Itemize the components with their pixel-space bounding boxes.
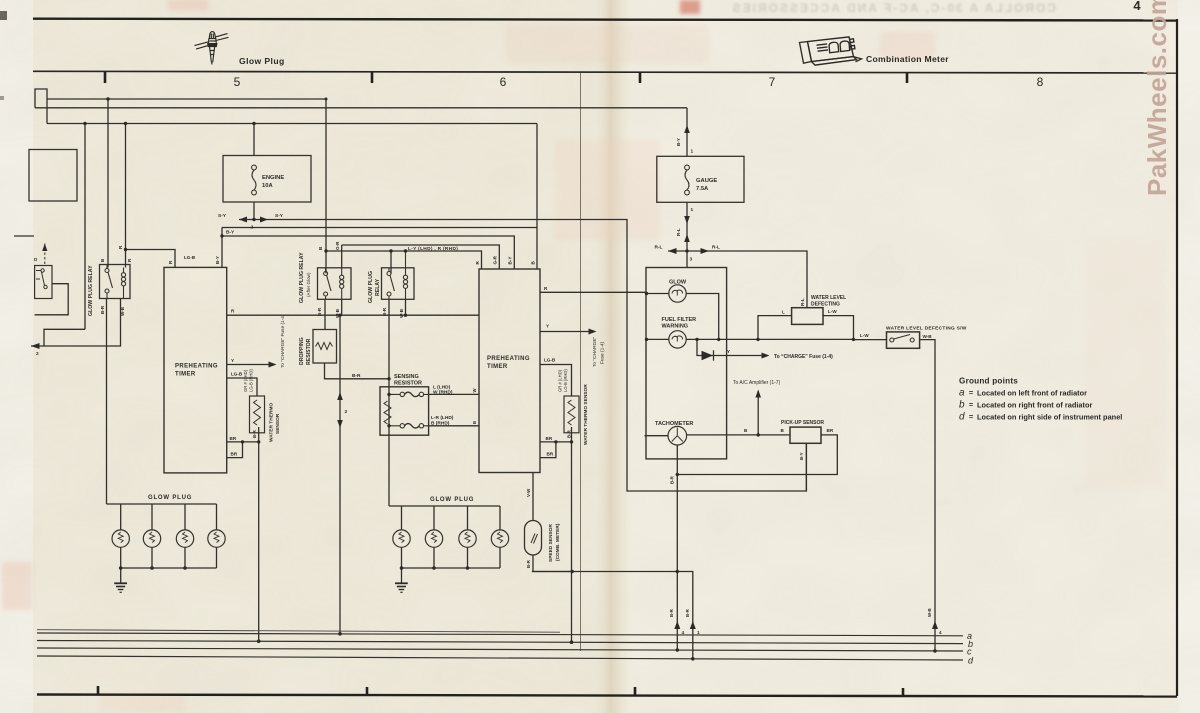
svg-text:BR: BR: [547, 452, 554, 457]
svg-text:GLOW PLUG: GLOW PLUG: [430, 497, 474, 503]
svg-text:RESISTOR: RESISTOR: [394, 381, 422, 387]
svg-text:PakWheels.com: PakWheels.com: [1142, 0, 1172, 196]
svg-text:Y: Y: [231, 358, 234, 363]
svg-text:GAUGE: GAUGE: [696, 178, 717, 184]
svg-text:=: =: [969, 402, 973, 409]
svg-text:(COMB. METER): (COMB. METER): [555, 523, 561, 561]
svg-text:Located on right side of instr: Located on right side of instrument pane…: [977, 413, 1122, 422]
svg-text:B-R: B-R: [685, 608, 690, 617]
svg-text:Y: Y: [727, 349, 730, 354]
svg-text:SPEED SENSOR: SPEED SENSOR: [548, 524, 554, 562]
svg-text:W: W: [472, 389, 477, 393]
svg-text:1: 1: [691, 149, 694, 155]
svg-text:RELAY: RELAY: [375, 278, 381, 296]
svg-text:R-L: R-L: [655, 245, 663, 251]
svg-text:L: L: [782, 310, 785, 315]
svg-text:GLOW PLUG: GLOW PLUG: [368, 271, 374, 303]
svg-text:R-L: R-L: [676, 228, 681, 236]
svg-text:GR # (LHD): GR # (LHD): [558, 369, 563, 392]
svg-text:To “CHARGE”: To “CHARGE”: [592, 336, 598, 367]
svg-text:S-Y: S-Y: [275, 213, 284, 219]
svg-text:Fuse (1-4): Fuse (1-4): [600, 341, 606, 364]
svg-text:G-R: G-R: [335, 241, 340, 250]
svg-text:ENGINE: ENGINE: [262, 175, 284, 181]
svg-text:B: B: [472, 421, 477, 424]
svg-text:5: 5: [234, 75, 241, 89]
svg-text:Y: Y: [546, 324, 549, 329]
svg-text:TIMER: TIMER: [487, 364, 508, 370]
svg-text:TACHOMETER: TACHOMETER: [655, 421, 693, 427]
svg-text:GLOW PLUG RELAY: GLOW PLUG RELAY: [88, 265, 94, 316]
svg-text:Combination Meter: Combination Meter: [866, 54, 949, 64]
svg-text:Located on right front of radi: Located on right front of radiator: [977, 401, 1092, 410]
svg-text:SENSOR: SENSOR: [275, 413, 281, 434]
svg-text:=: =: [969, 414, 973, 421]
svg-text:GLOW: GLOW: [669, 280, 687, 286]
svg-text:8: 8: [1037, 75, 1044, 89]
svg-text:B-R: B-R: [526, 559, 531, 568]
svg-text:4: 4: [939, 630, 942, 635]
svg-text:WATER LEVEL: WATER LEVEL: [811, 295, 846, 301]
svg-text:B-Y: B-Y: [676, 138, 681, 146]
svg-text:LG-B: LG-B: [231, 372, 243, 377]
svg-text:4: 4: [1133, 0, 1141, 13]
svg-text:B-R: B-R: [567, 429, 572, 438]
svg-text:FUEL FILTER: FUEL FILTER: [662, 317, 697, 323]
svg-text:TIMER: TIMER: [175, 372, 196, 378]
svg-text:WATER LEVEL DEFECTING S/W: WATER LEVEL DEFECTING S/W: [886, 326, 967, 332]
svg-text:W (RHD): W (RHD): [433, 390, 453, 396]
svg-text:LG-B: LG-B: [544, 358, 556, 363]
svg-text:d: d: [959, 412, 965, 423]
svg-text:1: 1: [691, 207, 694, 213]
svg-text:GLOW PLUG RELAY: GLOW PLUG RELAY: [299, 252, 305, 303]
svg-text:To A/C Amplifier (1-7): To A/C Amplifier (1-7): [733, 380, 781, 386]
svg-text:LG-B (RHD): LG-B (RHD): [563, 369, 568, 392]
svg-text:S-Y: S-Y: [218, 213, 227, 219]
svg-text:Ground points: Ground points: [959, 377, 1018, 386]
svg-text:PICK-UP SENSOR: PICK-UP SENSOR: [781, 420, 824, 426]
svg-text:10A: 10A: [262, 183, 273, 189]
svg-text:BR: BR: [231, 452, 238, 457]
svg-text:7.5A: 7.5A: [696, 186, 709, 192]
svg-text:LG-B (RHD): LG-B (RHD): [249, 369, 254, 392]
svg-text:a: a: [959, 388, 965, 399]
svg-text:b: b: [959, 400, 965, 411]
svg-text:PREHEATING: PREHEATING: [175, 364, 218, 370]
svg-text:Located on left front of radia: Located on left front of radiator: [977, 389, 1087, 398]
svg-text:B-R: B-R: [670, 475, 675, 484]
svg-text:(After Glow): (After Glow): [306, 272, 311, 297]
svg-text:WARNING: WARNING: [662, 324, 689, 330]
svg-text:2: 2: [36, 351, 39, 357]
svg-text:B-Y: B-Y: [215, 256, 220, 264]
svg-text:SENSING: SENSING: [394, 374, 419, 380]
svg-text:B-Y: B-Y: [508, 257, 513, 265]
svg-text:B-Y: B-Y: [226, 230, 235, 236]
svg-text:6: 6: [500, 75, 507, 89]
svg-text:V-W: V-W: [526, 488, 531, 497]
svg-text:R-L: R-L: [800, 298, 805, 306]
svg-text:Glow Plug: Glow Plug: [239, 56, 285, 66]
svg-text:L-Y (LHD) , R (RHD): L-Y (LHD) , R (RHD): [408, 246, 458, 252]
svg-text:B-R: B-R: [669, 608, 674, 617]
svg-text:GLOW PLUG: GLOW PLUG: [148, 495, 192, 501]
svg-text:RESISTOR: RESISTOR: [306, 338, 312, 365]
svg-text:L-W: L-W: [828, 309, 837, 314]
svg-text:BR: BR: [230, 436, 237, 441]
svg-text:B (RHD): B (RHD): [431, 421, 450, 427]
svg-text:4: 4: [682, 630, 685, 635]
svg-text:7: 7: [769, 75, 776, 89]
svg-text:To “CHARGE” Fuse (1-4): To “CHARGE” Fuse (1-4): [280, 314, 286, 368]
svg-text:W-B: W-B: [399, 308, 404, 318]
svg-text:PREHEATING: PREHEATING: [487, 356, 530, 362]
svg-text:3: 3: [690, 257, 693, 263]
svg-text:WATER THERMO SENSOR: WATER THERMO SENSOR: [583, 384, 589, 445]
svg-text:R-L: R-L: [712, 245, 720, 251]
svg-text:BR: BR: [546, 436, 553, 441]
svg-text:GR # (LHD): GR # (LHD): [243, 369, 248, 392]
svg-text:BR: BR: [827, 428, 834, 433]
svg-text:DROPPING: DROPPING: [299, 337, 305, 365]
svg-text:=: =: [969, 390, 973, 397]
svg-text:To “CHARGE” Fuse (1-4): To “CHARGE” Fuse (1-4): [774, 354, 833, 360]
svg-text:WATER THERMO: WATER THERMO: [269, 403, 275, 442]
svg-text:COROLLA A 30-C, AC-F AND ACCE: COROLLA A 30-C, AC-F AND ACCESSORIES: [731, 1, 1056, 15]
svg-text:B-R: B-R: [252, 429, 257, 438]
svg-text:W-B: W-B: [923, 334, 933, 339]
svg-text:1: 1: [697, 630, 700, 635]
svg-text:B-Y: B-Y: [799, 452, 804, 460]
svg-text:L-R (LHD): L-R (LHD): [431, 415, 454, 421]
svg-text:2: 2: [345, 409, 348, 415]
svg-text:LG-B: LG-B: [184, 255, 196, 260]
svg-text:B-R: B-R: [100, 305, 105, 314]
svg-text:B-R: B-R: [352, 373, 361, 379]
svg-text:G-R: G-R: [493, 255, 498, 264]
svg-text:W-B: W-B: [927, 608, 932, 617]
svg-text:L-W: L-W: [860, 333, 869, 338]
svg-text:DEFECTING: DEFECTING: [811, 302, 840, 308]
